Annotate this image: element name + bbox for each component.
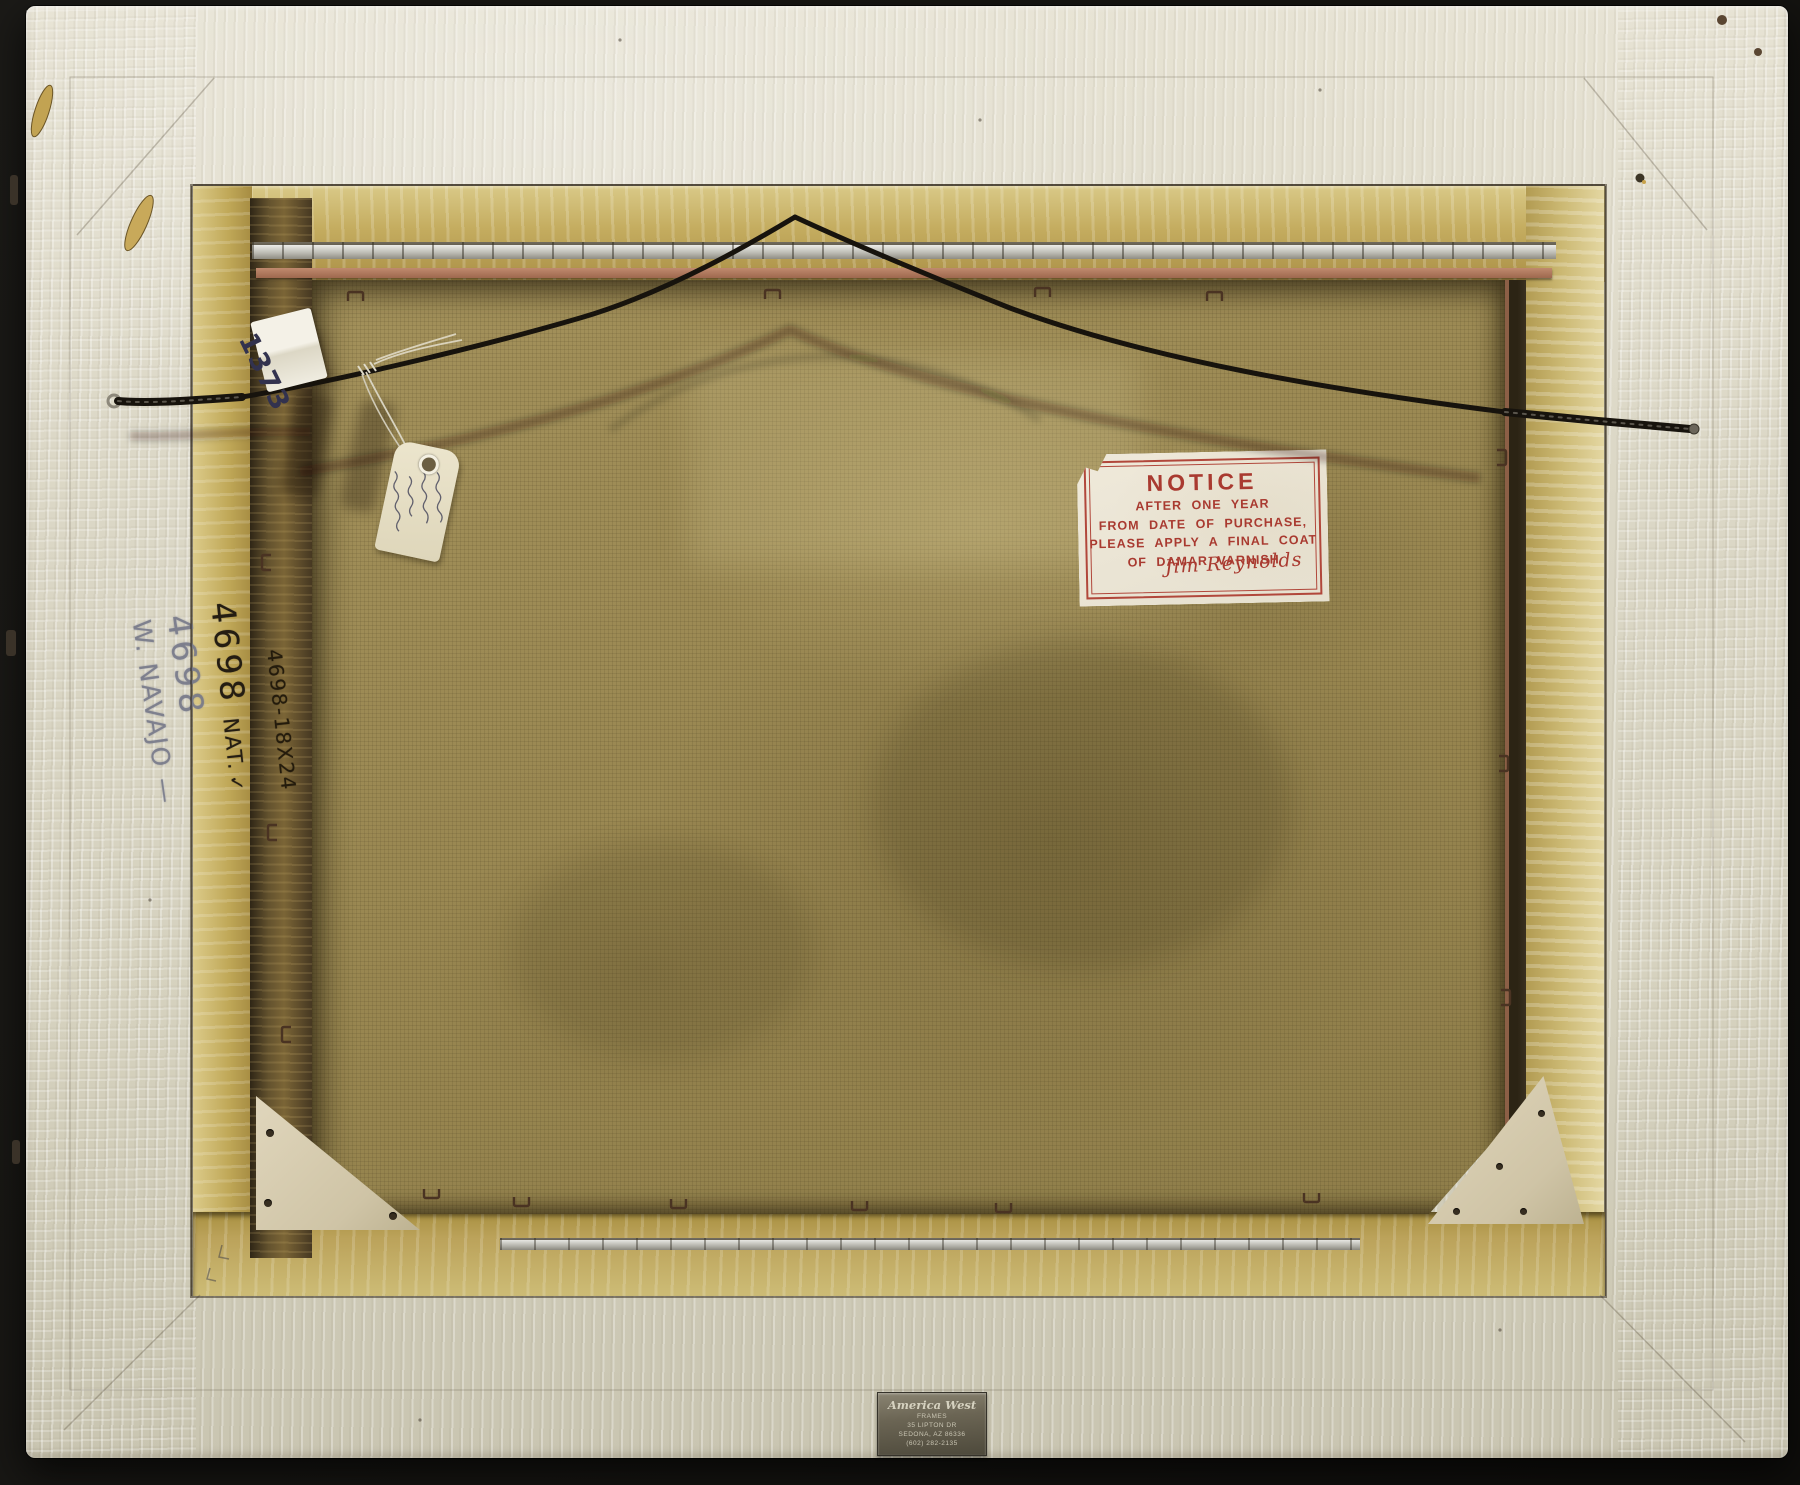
- wire-shadow: [130, 330, 1480, 478]
- staples: [262, 288, 1510, 1212]
- overlay-details: [0, 0, 1800, 1485]
- wire-eye-right: [1689, 424, 1699, 434]
- framed-painting-back-photo: NOTICE AFTER ONE YEAR FROM DATE OF PURCH…: [0, 0, 1800, 1485]
- frame-blemishes: [6, 15, 1762, 1422]
- frame-seam-lines: [64, 77, 1745, 1442]
- hanging-wire: [108, 217, 1699, 434]
